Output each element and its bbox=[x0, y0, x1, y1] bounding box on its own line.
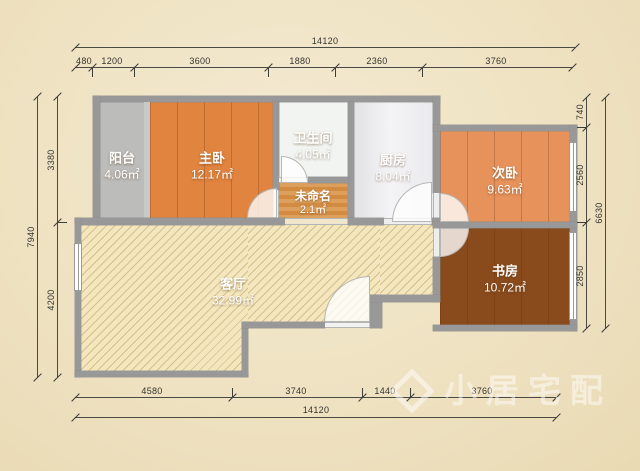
dim-bottom-seg-2: 1440 bbox=[374, 386, 395, 396]
dim-stub bbox=[362, 388, 363, 397]
dim-stub bbox=[57, 222, 67, 223]
dim-top-seg-1: 1200 bbox=[101, 56, 122, 66]
wall-balcony-left bbox=[93, 96, 100, 225]
dim-stub bbox=[422, 67, 423, 77]
dim-top-seg-3: 1880 bbox=[289, 56, 310, 66]
dim-stub bbox=[268, 67, 269, 77]
dim-line-top-total bbox=[75, 47, 575, 48]
dim-stub bbox=[232, 388, 233, 397]
watermark-cube-icon bbox=[389, 368, 434, 413]
wall-corridor-bottom bbox=[370, 295, 440, 302]
wall-bottom-middle bbox=[242, 322, 325, 328]
wall-second-top bbox=[433, 125, 577, 131]
wall-balcony-divider bbox=[144, 102, 150, 218]
wall-kitchen-right-upper bbox=[433, 96, 440, 193]
dim-line-left-total bbox=[37, 96, 38, 377]
dim-stub bbox=[92, 67, 93, 77]
wall-step-vertical bbox=[242, 322, 248, 377]
dim-line-bottom-total bbox=[75, 417, 556, 418]
dim-top-seg-4: 2360 bbox=[366, 56, 387, 66]
dim-line-bottom-segments bbox=[75, 397, 556, 398]
wall-living-left bbox=[75, 218, 81, 377]
dim-left-seg-0: 3380 bbox=[46, 149, 56, 170]
door-opening-study bbox=[433, 228, 440, 257]
dim-left-seg-1: 4200 bbox=[46, 289, 56, 310]
dim-top-seg-2: 3600 bbox=[189, 56, 210, 66]
dim-line-top-segments bbox=[75, 67, 572, 68]
dim-bottom-seg-3: 3760 bbox=[471, 386, 492, 396]
dim-stub bbox=[577, 222, 586, 223]
floor-plan-canvas: 阳台 4.06㎡ 主卧 12.17㎡ 卫生间 4.05㎡ 厨房 8.04㎡ 次卧… bbox=[0, 0, 640, 471]
door-opening-entry bbox=[325, 322, 370, 328]
dim-top-seg-0: 480 bbox=[76, 56, 92, 66]
room-unnamed[interactable] bbox=[279, 183, 348, 218]
dim-right-seg-1: 2560 bbox=[575, 164, 585, 185]
wall-living-bottom-left bbox=[75, 371, 248, 377]
window-living-left bbox=[74, 243, 82, 291]
wall-bath-bottom bbox=[308, 177, 348, 183]
dim-right-total: 6630 bbox=[594, 202, 604, 223]
wall-bath-kitchen bbox=[348, 102, 354, 218]
wall-main-horizontal-mid bbox=[348, 218, 384, 225]
dim-line-right-total bbox=[605, 97, 606, 328]
dim-left-total: 7940 bbox=[26, 226, 36, 247]
watermark: 小居宅配 bbox=[396, 374, 612, 407]
dim-stub bbox=[335, 67, 336, 77]
dim-top-seg-5: 3760 bbox=[485, 56, 506, 66]
wall-study-bottom bbox=[433, 325, 577, 331]
watermark-text: 小居宅配 bbox=[444, 374, 612, 407]
room-balcony[interactable] bbox=[100, 102, 144, 218]
dim-bottom-seg-1: 3740 bbox=[285, 386, 306, 396]
passage-unnamed bbox=[285, 218, 348, 225]
dim-line-left-segments bbox=[57, 96, 58, 377]
dim-stub bbox=[577, 127, 586, 128]
wall-main-horizontal-left bbox=[75, 218, 285, 225]
room-living-left[interactable] bbox=[81, 225, 248, 371]
dim-line-right-segments bbox=[586, 97, 587, 328]
dim-right-seg-0: 740 bbox=[575, 104, 585, 120]
dim-stub bbox=[410, 388, 411, 397]
dim-bottom-total: 14120 bbox=[303, 405, 330, 415]
dim-right-seg-2: 2850 bbox=[575, 265, 585, 286]
room-living-corridor[interactable] bbox=[380, 225, 433, 295]
dim-stub bbox=[134, 67, 135, 77]
dim-bottom-seg-0: 4580 bbox=[141, 386, 162, 396]
dim-top-total: 14120 bbox=[312, 36, 339, 46]
